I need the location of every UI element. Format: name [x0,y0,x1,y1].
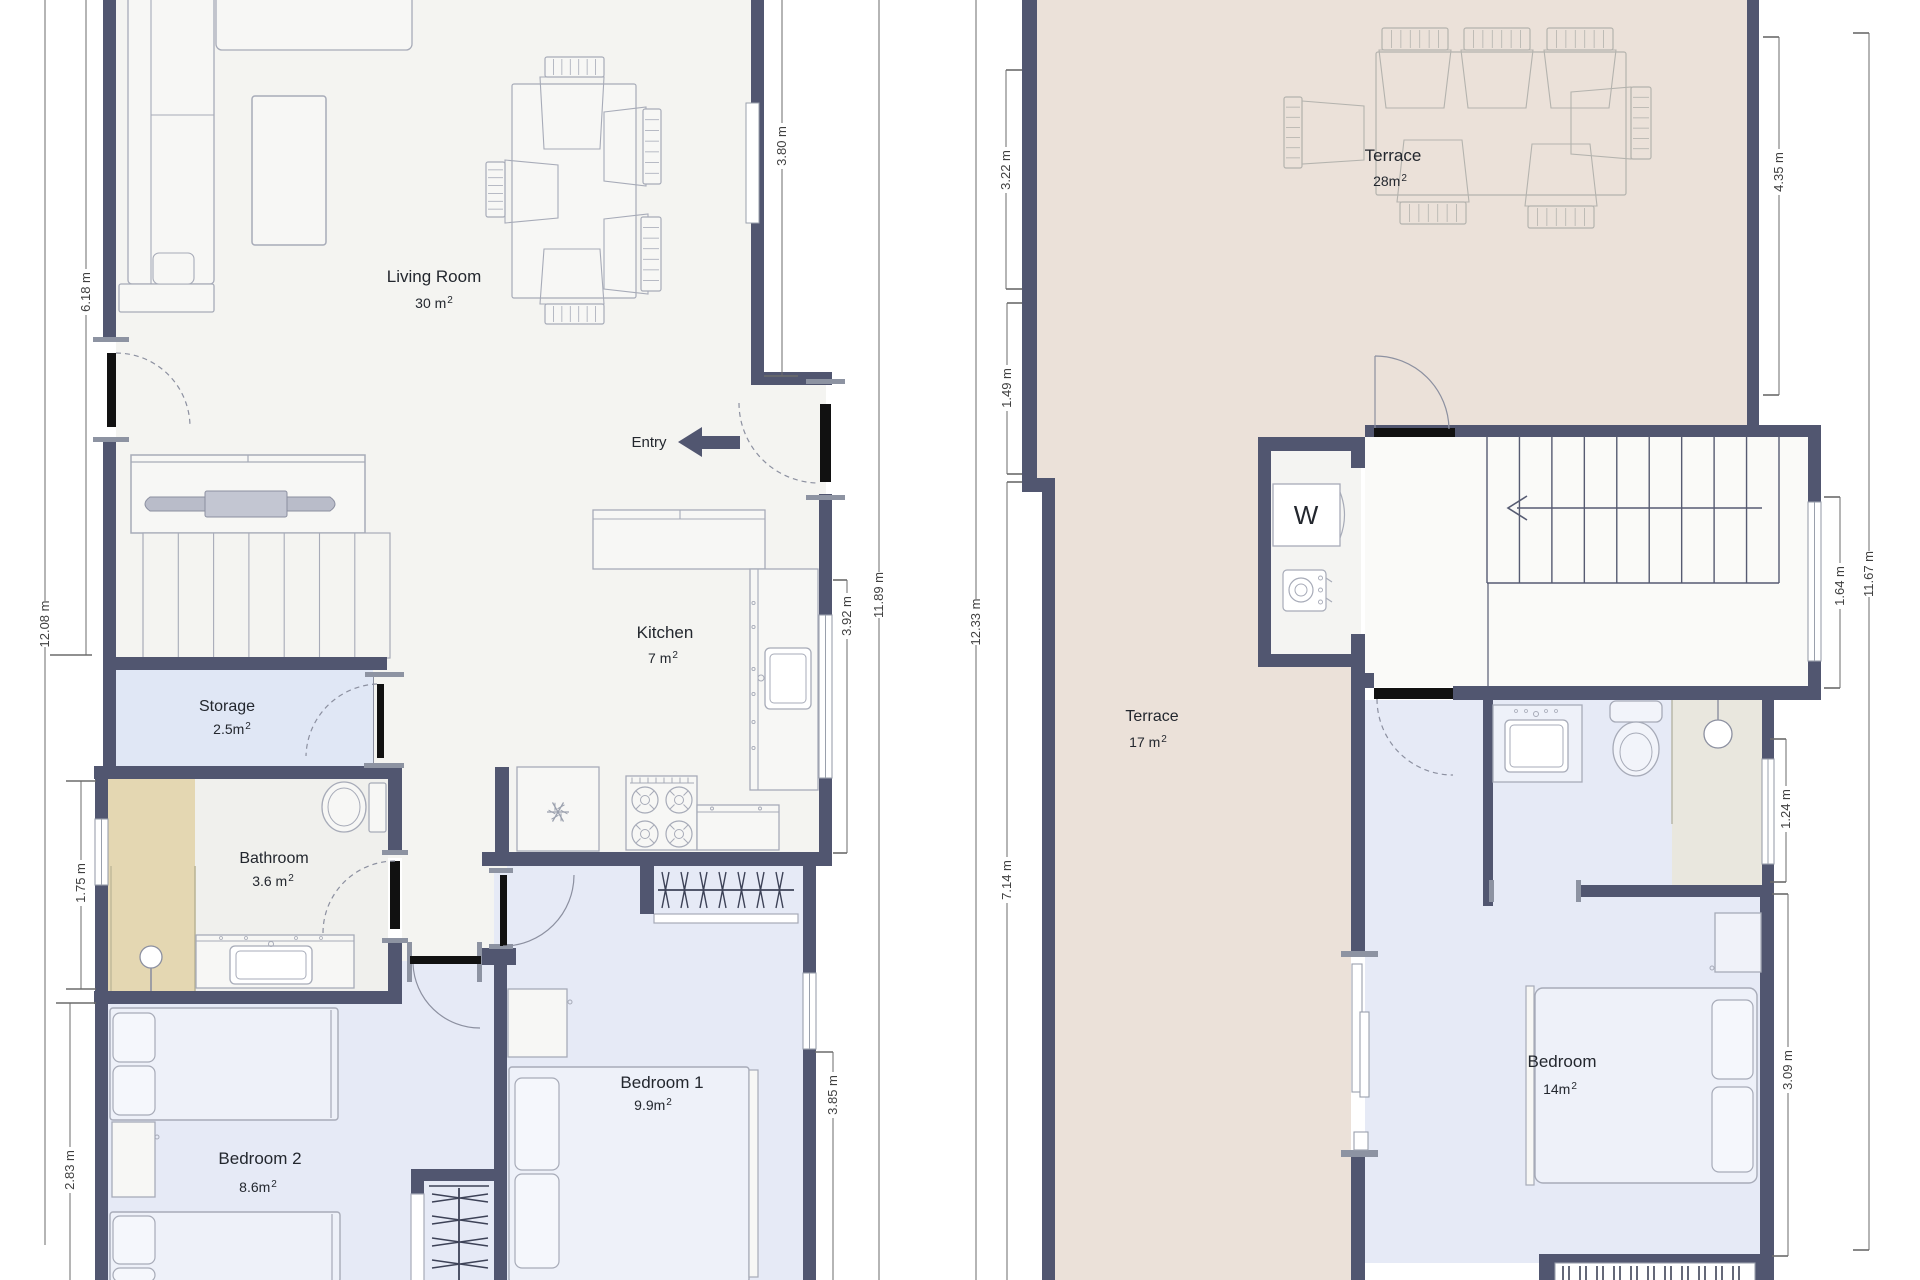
svg-text:1.75 m: 1.75 m [73,863,88,903]
svg-text:12.33 m: 12.33 m [968,599,983,646]
svg-text:Entry: Entry [631,434,667,451]
svg-text:3.22 m: 3.22 m [998,150,1013,190]
svg-text:12.08 m: 12.08 m [37,601,52,648]
svg-text:Living Room: Living Room [387,267,482,286]
svg-text:1.24 m: 1.24 m [1778,789,1793,829]
svg-text:Bedroom 2: Bedroom 2 [218,1149,301,1168]
svg-text:Bathroom: Bathroom [239,850,308,867]
svg-text:1.64 m: 1.64 m [1832,566,1847,606]
svg-text:7.14 m: 7.14 m [999,860,1014,900]
svg-text:Kitchen: Kitchen [637,623,694,642]
svg-text:3.09 m: 3.09 m [1780,1050,1795,1090]
svg-text:4.35 m: 4.35 m [1771,152,1786,192]
svg-text:Storage: Storage [199,698,255,715]
svg-text:3.92 m: 3.92 m [839,596,854,636]
svg-text:Terrace: Terrace [1125,708,1178,725]
svg-text:3.80 m: 3.80 m [774,126,789,166]
svg-text:6.18 m: 6.18 m [78,272,93,312]
svg-text:11.67 m: 11.67 m [1861,551,1876,597]
svg-text:3.85 m: 3.85 m [825,1075,840,1115]
svg-text:2.83 m: 2.83 m [62,1150,77,1190]
svg-text:1.49 m: 1.49 m [999,368,1014,408]
svg-text:Bedroom 1: Bedroom 1 [620,1073,703,1092]
svg-text:11.89 m: 11.89 m [871,572,886,618]
svg-text:W: W [1294,500,1319,530]
svg-text:Terrace: Terrace [1365,146,1422,165]
svg-text:Bedroom: Bedroom [1528,1052,1597,1071]
